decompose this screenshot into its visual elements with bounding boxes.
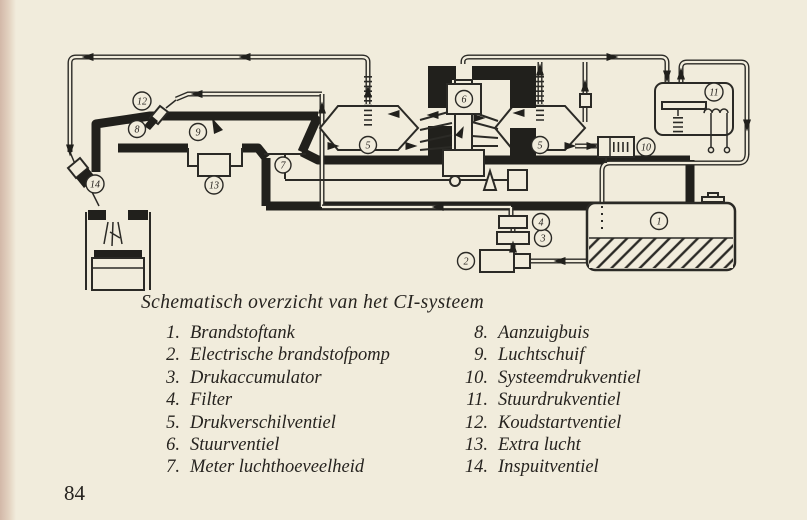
svg-text:14: 14 [90,180,100,191]
callout-5-left: 5 [360,137,377,154]
legend-number: 11. [450,389,488,411]
svg-text:3: 3 [540,234,546,245]
legend-list: 1. Brandstoftank 2. Electrische brandsto… [142,322,641,479]
page-number: 84 [64,481,85,506]
callout-13: 13 [205,176,223,194]
book-page: 1 2 3 4 5 5 6 7 8 9 10 11 12 13 14 Schem [0,0,807,520]
callout-12: 12 [133,92,151,110]
svg-text:6: 6 [462,95,467,106]
legend-item-11: 11. Stuurdrukventiel [450,389,641,411]
svg-text:5: 5 [366,141,371,152]
fuel-pump-stack [480,216,530,272]
svg-text:5: 5 [538,141,543,152]
legend-item-1: 1. Brandstoftank [142,322,450,344]
legend-label: Luchtschuif [498,344,584,366]
svg-text:11: 11 [709,88,718,99]
svg-text:1: 1 [657,217,662,228]
legend-number: 7. [142,456,180,478]
ci-system-schematic: 1 2 3 4 5 5 6 7 8 9 10 11 12 13 14 [0,0,807,295]
callout-8: 8 [129,121,146,138]
legend-number: 5. [142,412,180,434]
legend-item-10: 10. Systeemdrukventiel [450,367,641,389]
system-pressure-valve [598,137,634,157]
fuel-tank [587,193,735,270]
legend-label: Meter luchthoeveelheid [190,456,364,478]
legend-label: Aanzuigbuis [498,322,589,344]
legend-label: Stuurdrukventiel [498,389,621,411]
legend-label: Drukverschilventiel [190,412,336,434]
legend-number: 12. [450,412,488,434]
legend-label: Brandstoftank [190,322,295,344]
legend-label: Systeemdrukventiel [498,367,641,389]
legend-item-3: 3. Drukaccumulator [142,367,450,389]
legend-number: 10. [450,367,488,389]
legend-number: 9. [450,344,488,366]
callout-11: 11 [705,83,723,101]
callout-7: 7 [275,157,291,173]
svg-text:2: 2 [464,257,469,268]
legend-label: Stuurventiel [190,434,279,456]
legend-number: 8. [450,322,488,344]
legend-number: 6. [142,434,180,456]
callout-1: 1 [651,213,668,230]
callout-4: 4 [533,214,550,231]
legend-number: 3. [142,367,180,389]
callout-10: 10 [637,138,655,156]
svg-text:10: 10 [641,143,651,154]
legend-column-right: 8. Aanzuigbuis 9. Luchtschuif 10. Systee… [450,322,641,479]
svg-text:4: 4 [539,218,544,229]
callout-3: 3 [535,230,552,247]
legend-label: Drukaccumulator [190,367,322,389]
legend-label: Electrische brandstofpomp [190,344,390,366]
legend-item-6: 6. Stuurventiel [142,434,450,456]
legend-column-left: 1. Brandstoftank 2. Electrische brandsto… [142,322,450,479]
legend-label: Koudstartventiel [498,412,621,434]
svg-text:13: 13 [209,181,219,192]
svg-text:8: 8 [135,125,140,136]
legend-item-9: 9. Luchtschuif [450,344,641,366]
svg-text:12: 12 [137,97,147,108]
diagram-caption: Schematisch overzicht van het CI-systeem [141,292,484,314]
callout-5-right: 5 [532,137,549,154]
callout-2: 2 [458,253,475,270]
legend-number: 13. [450,434,488,456]
legend-label: Extra lucht [498,434,581,456]
legend-number: 2. [142,344,180,366]
legend-label: Inspuitventiel [498,456,599,478]
callout-9: 9 [190,124,207,141]
legend-item-12: 12. Koudstartventiel [450,412,641,434]
legend-item-14: 14. Inspuitventiel [450,456,641,478]
legend-item-5: 5. Drukverschilventiel [142,412,450,434]
legend-item-8: 8. Aanzuigbuis [450,322,641,344]
legend-item-4: 4. Filter [142,389,450,411]
legend-number: 1. [142,322,180,344]
injector-and-cylinder [68,152,150,290]
legend-number: 14. [450,456,488,478]
legend-item-2: 2. Electrische brandstofpomp [142,344,450,366]
legend-item-13: 13. Extra lucht [450,434,641,456]
legend-item-7: 7. Meter luchthoeveelheid [142,456,450,478]
legend-label: Filter [190,389,232,411]
callout-14: 14 [86,175,104,193]
extra-air-bypass [188,148,242,176]
legend-number: 4. [142,389,180,411]
svg-text:9: 9 [196,128,201,139]
callout-6: 6 [456,91,473,108]
